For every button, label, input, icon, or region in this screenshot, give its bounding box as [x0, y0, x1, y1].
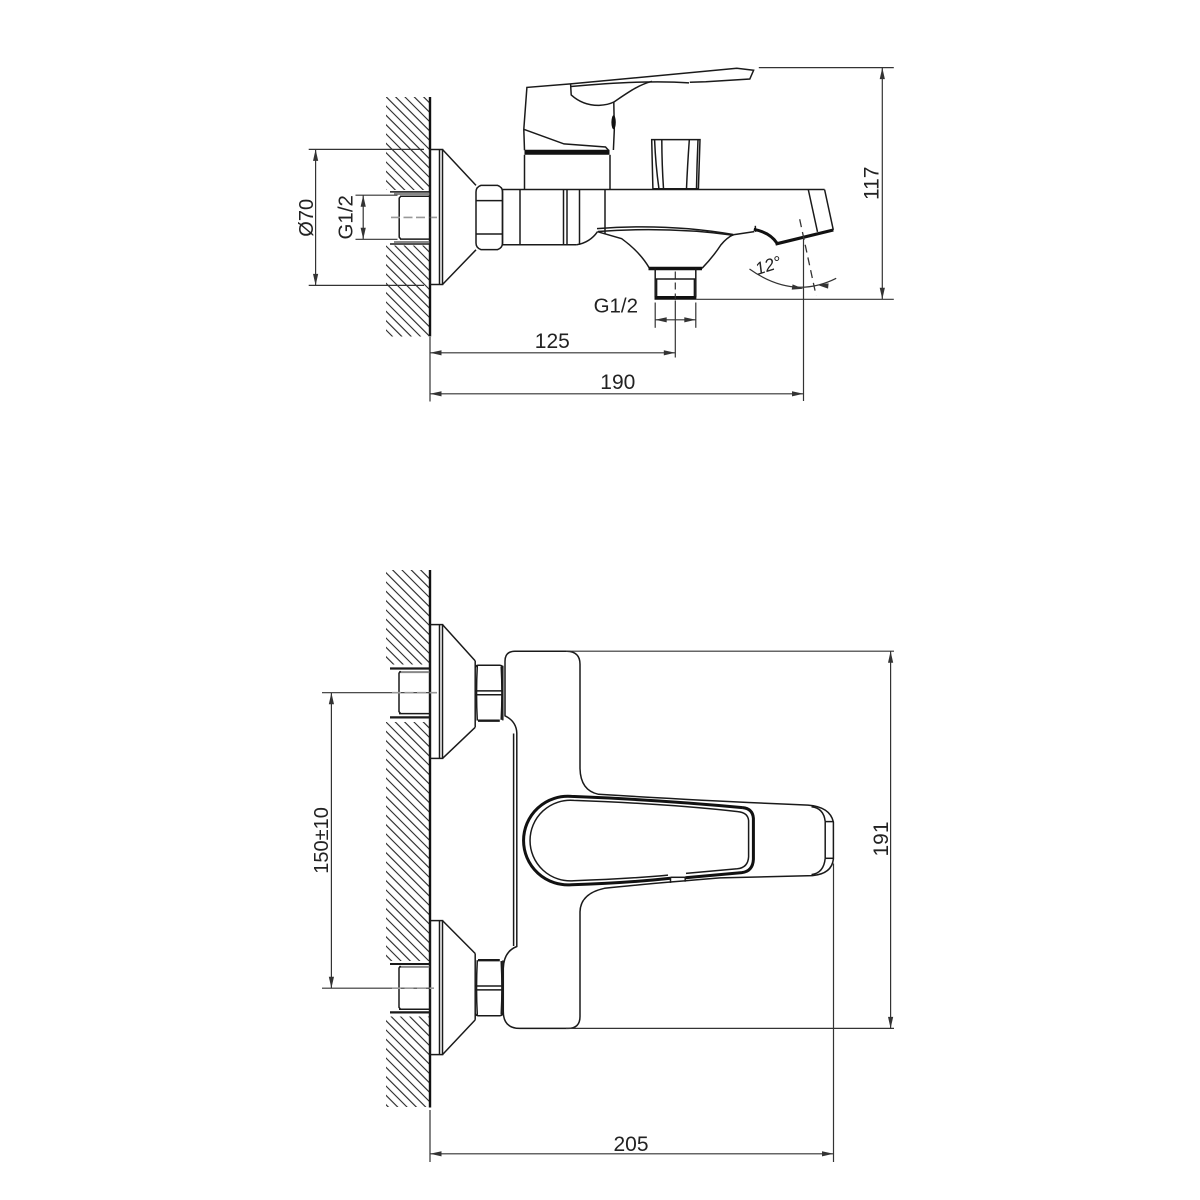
svg-text:190: 190 [600, 371, 635, 394]
svg-text:150±10: 150±10 [311, 807, 333, 874]
svg-text:Ø70: Ø70 [296, 199, 318, 237]
svg-text:125: 125 [535, 330, 570, 353]
svg-text:G1/2: G1/2 [335, 195, 358, 239]
svg-text:117: 117 [861, 167, 884, 200]
svg-text:191: 191 [870, 821, 893, 856]
svg-text:G1/2: G1/2 [594, 295, 638, 318]
svg-text:205: 205 [613, 1133, 648, 1156]
